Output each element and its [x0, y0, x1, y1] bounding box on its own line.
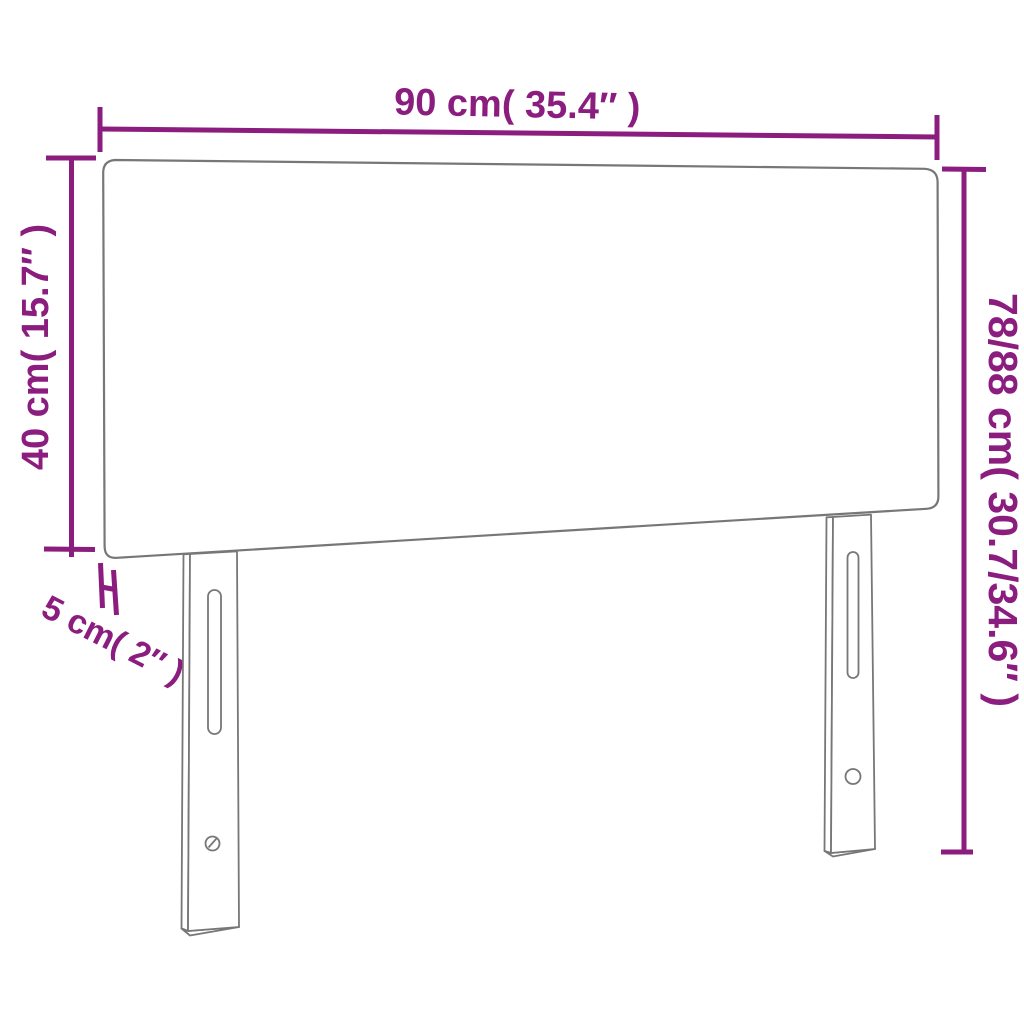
headboard-leg-left	[182, 551, 240, 935]
dimension-thickness: 5 cm( 2″ )	[36, 563, 191, 692]
width-dimension-label: 90 cm( 35.4″ )	[394, 81, 641, 128]
headboard-dimension-diagram: 90 cm( 35.4″ ) 40 cm( 15.7″ ) 78/88 cm( …	[0, 0, 1024, 1024]
right-height-dimension-label: 78/88 cm( 30.7/34.6″ )	[980, 293, 1024, 707]
left-dim-cap-bottom	[44, 549, 95, 550]
headboard-panel	[103, 160, 938, 558]
right-dim-cap-top	[942, 169, 986, 170]
thickness-dimension-label: 5 cm( 2″ )	[36, 588, 191, 692]
leg-right-front-face	[831, 515, 875, 853]
width-dim-line	[100, 129, 937, 137]
thickness-crossbar	[102, 587, 116, 590]
headboard-leg-right	[825, 515, 876, 857]
left-height-dimension-label: 40 cm( 15.7″ )	[15, 224, 57, 470]
leg-left-front-face	[188, 551, 239, 931]
dimension-height-left: 40 cm( 15.7″ )	[15, 158, 96, 557]
thickness-tick-right	[114, 570, 117, 615]
headboard-drawing	[103, 160, 938, 936]
dimension-height-right: 78/88 cm( 30.7/34.6″ )	[941, 169, 1024, 852]
dimension-width: 90 cm( 35.4″ )	[100, 81, 937, 160]
dimension-diagram-page: 90 cm( 35.4″ ) 40 cm( 15.7″ ) 78/88 cm( …	[0, 0, 1024, 1024]
